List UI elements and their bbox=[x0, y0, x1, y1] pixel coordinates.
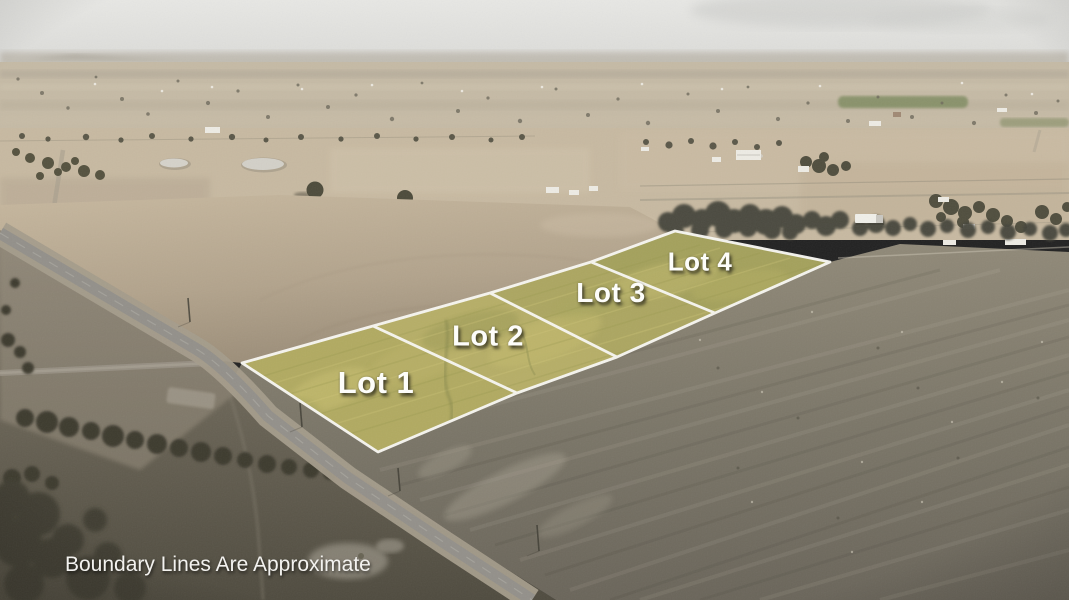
lot-1-label: Lot 1 bbox=[338, 365, 415, 401]
boundary-disclaimer: Boundary Lines Are Approximate bbox=[65, 553, 371, 577]
aerial-photo-canvas bbox=[0, 0, 1069, 600]
photo-grain bbox=[0, 0, 1069, 600]
lot-3-label: Lot 3 bbox=[576, 277, 645, 309]
lot-2-label: Lot 2 bbox=[452, 321, 524, 354]
aerial-photo: Lot 1 Lot 2 Lot 3 Lot 4 Boundary Lines A… bbox=[0, 0, 1069, 600]
lot-4-label: Lot 4 bbox=[668, 247, 733, 278]
